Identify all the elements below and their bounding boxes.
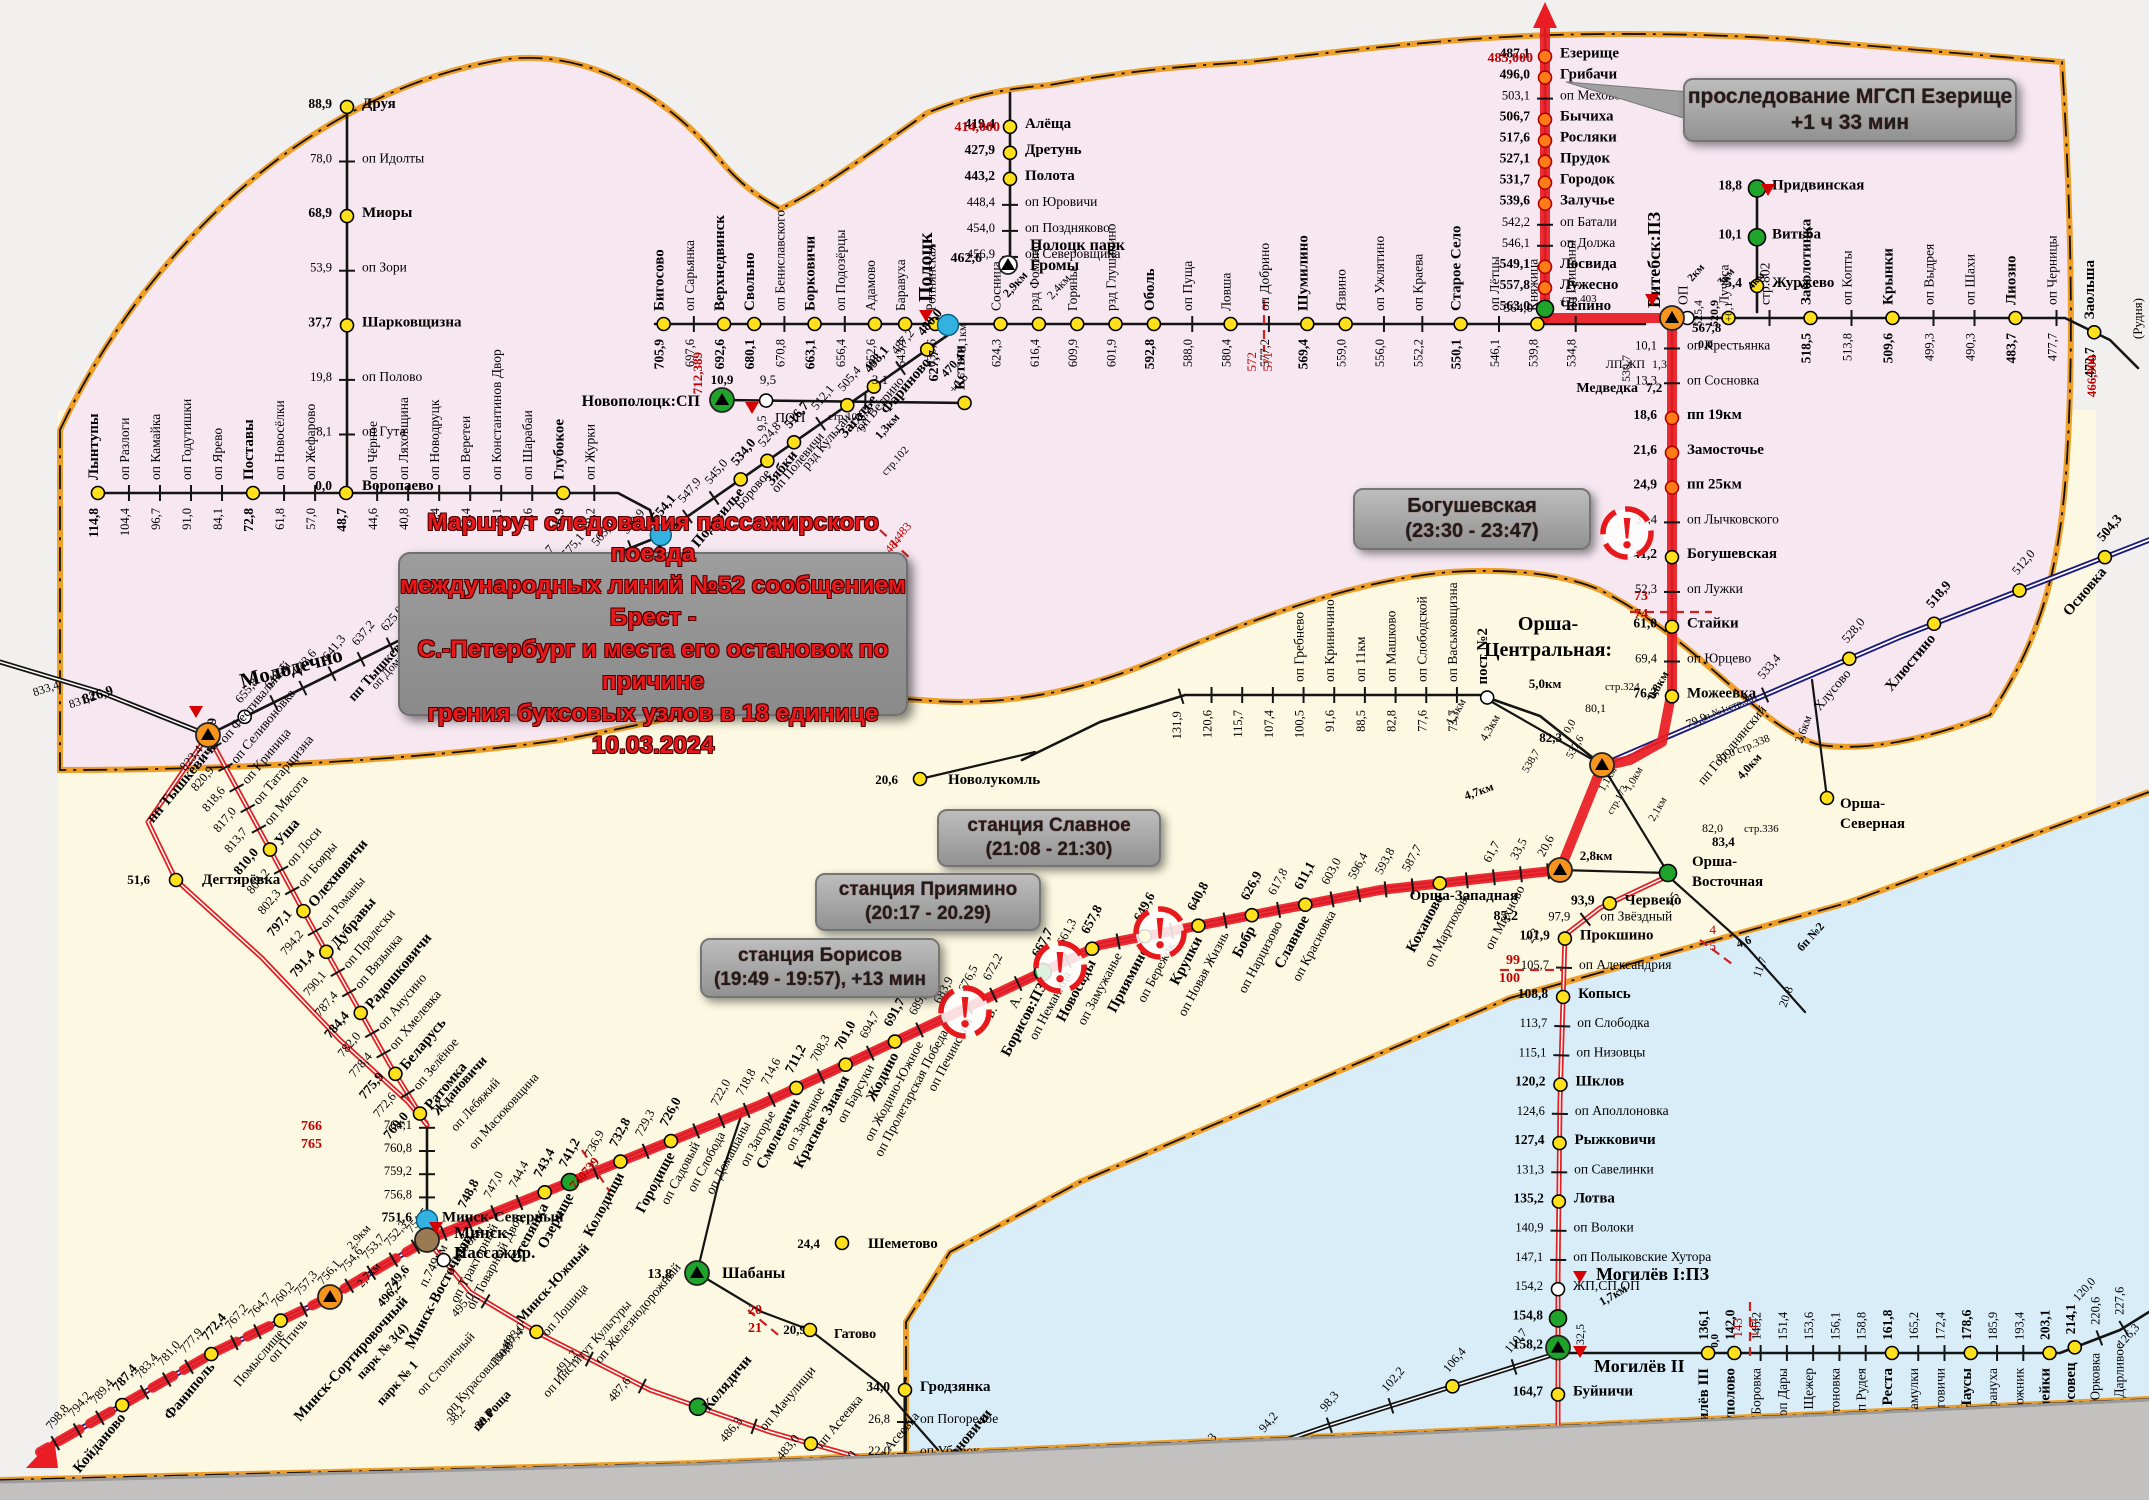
station-dot-yellow <box>2043 1347 2056 1360</box>
station-km: 517,6 <box>1500 130 1531 145</box>
station-оп Полово: оп Полово19,8 <box>310 369 422 384</box>
map-label: стр.403 <box>1562 293 1597 305</box>
station-km: 448,4 <box>967 195 996 209</box>
station-km: 107,4 <box>1262 709 1276 738</box>
station-km: 692,6 <box>712 339 727 370</box>
station-dot-yellow <box>1666 690 1679 703</box>
station-name: оп Зори <box>362 260 407 275</box>
station-name: оп Веретеи <box>458 416 473 480</box>
station-dot-white <box>1481 691 1494 704</box>
map-label: 627,7 <box>927 350 942 382</box>
station-name: Поставы <box>241 419 257 480</box>
station-Рыжковичи: Рыжковичи127,4 <box>1514 1132 1656 1150</box>
station-dot-green <box>1550 1310 1567 1327</box>
map-label: 100 <box>1499 971 1520 986</box>
station-dot-red <box>1539 155 1552 168</box>
station-km: 53,9 <box>310 261 332 275</box>
station-km: 84,1 <box>211 508 225 530</box>
station-km: 549,1 <box>1500 256 1531 271</box>
station-name: Заольша <box>2082 260 2098 320</box>
callout-text: (19:49 - 19:57), +13 мин <box>702 968 938 992</box>
station-km: 127,4 <box>1514 1132 1545 1147</box>
station-name: Городок <box>1560 172 1615 188</box>
station-dot-yellow <box>1666 620 1679 633</box>
station-km: 88,9 <box>308 96 332 111</box>
hotbox-warning-icon: ! <box>1136 907 1184 958</box>
station-оп Разлоги: оп Разлоги104,4 <box>117 418 132 537</box>
map-label: 143 <box>1730 1318 1745 1338</box>
station-name: Реста <box>1880 1368 1896 1406</box>
map-label: Орша- <box>1518 613 1578 635</box>
station-km: 19,8 <box>310 370 332 384</box>
station-km: 158,8 <box>1855 1312 1869 1340</box>
station-name: оп Гребнево <box>1292 612 1307 682</box>
station-name: оп Поздняково <box>1025 220 1110 235</box>
map-label: (Рудня) <box>2130 298 2145 339</box>
station-оп Годутишки: оп Годутишки91,0 <box>179 399 194 530</box>
station-km: 72,8 <box>241 508 256 532</box>
station-name: оп Черницы <box>2044 235 2059 305</box>
map-label: Северная <box>1840 816 1905 832</box>
station-dot-yellow <box>274 1314 287 1327</box>
station-dot-red <box>1666 446 1679 459</box>
station-name: оп Ужлятино <box>1372 236 1387 311</box>
station-km: 557,8 <box>1500 277 1531 292</box>
map-label: 83,4 <box>1712 834 1735 849</box>
map-label: Медведка <box>1576 381 1638 396</box>
station-km: 69,4 <box>1635 652 1658 666</box>
station-km: 751,6 <box>382 1210 413 1225</box>
station-dot-white <box>1552 1283 1565 1296</box>
title-line: международных линий №52 сообщением Брест… <box>400 570 906 634</box>
map-label: Гатово <box>834 1327 876 1342</box>
station-оп Лычковского: оп Лычковского31,4 <box>1635 511 1779 526</box>
station-name: Полота <box>1025 168 1075 184</box>
station-km: 8,1 <box>316 425 332 439</box>
station-dot-yellow <box>958 396 971 409</box>
station-dot-yellow <box>557 487 570 500</box>
station-dot-yellow <box>2068 1341 2081 1354</box>
map-label: 564,0 <box>1504 300 1533 315</box>
station-name: оп Полыковские Хутора <box>1573 1249 1711 1264</box>
station-km: 546,1 <box>1488 339 1502 367</box>
station-name: Шарковщизна <box>362 314 462 330</box>
station-name: Горяны <box>1065 268 1080 311</box>
station-km: 77,6 <box>1415 710 1429 732</box>
station-оп Батали: оп Батали542,2 <box>1502 214 1617 229</box>
map-label: 20,6 <box>875 772 898 787</box>
station-name: оп Слободской <box>1414 596 1429 682</box>
map-label: +0,1 <box>1723 302 1735 322</box>
station-km: 154,8 <box>1513 1307 1544 1322</box>
station-dot-yellow <box>297 905 310 918</box>
map-label: 766 <box>301 1119 322 1134</box>
station-km: 104,4 <box>118 507 132 536</box>
station-name: Стайки <box>1687 616 1739 632</box>
map-label: Орша- <box>1692 854 1737 870</box>
station-km: 108,8 <box>1518 986 1549 1001</box>
station-name: Свольно <box>742 252 758 311</box>
station-km: 151,4 <box>1776 1311 1790 1340</box>
station-km: 759,2 <box>384 1164 412 1178</box>
station-km: 534,8 <box>1565 339 1579 367</box>
station-dot-yellow <box>614 1155 627 1168</box>
station-km: 0,0 <box>315 478 332 493</box>
map-label: 144 <box>1746 1318 1761 1338</box>
station-dot-yellow <box>354 1006 367 1019</box>
station-dot-yellow <box>340 487 353 500</box>
station-name: оп Пуща <box>1180 261 1195 311</box>
station-Стайки: Стайки61,0 <box>1633 616 1739 634</box>
map-label: 572 <box>1244 352 1259 372</box>
station-dot-yellow <box>91 487 104 500</box>
station-dot-yellow <box>205 1348 218 1361</box>
callout-priyamino: станция Приямино (20:17 - 20.29) <box>815 873 1041 931</box>
station-dot-yellow <box>2098 551 2111 564</box>
station-оп Ужлятино: оп Ужлятино556,0 <box>1372 236 1387 367</box>
map-label: Могилёв II <box>1594 1356 1685 1376</box>
station-km: 193,4 <box>2012 1311 2026 1340</box>
station-dot-yellow <box>839 1058 852 1071</box>
station-dot-yellow <box>868 318 881 331</box>
station-name: Лынтупы <box>86 413 102 480</box>
callout-text: станция Приямино <box>817 878 1039 902</box>
station-dot-yellow <box>1531 318 1544 331</box>
map-label: 82,3 <box>1539 730 1562 745</box>
station-km: 588,0 <box>1181 339 1195 367</box>
station-пп 19км: пп 19км18,6 <box>1633 407 1742 425</box>
station-km: 135,2 <box>1513 1191 1544 1206</box>
station-name: Верхнедвинск <box>712 215 728 311</box>
callout-text: Богушевская <box>1355 494 1589 519</box>
hotbox-warning-icon: ! <box>1603 507 1651 558</box>
station-name: Витьба <box>1772 226 1821 242</box>
station-km: 120,2 <box>1515 1074 1546 1089</box>
station-Шарковщизна: Шарковщизна37,7 <box>308 314 462 332</box>
station-name: Миоры <box>362 205 413 221</box>
station-km: 550,1 <box>1449 339 1464 370</box>
station-dot-yellow <box>1553 1137 1566 1150</box>
exclamation-icon: ! <box>1619 507 1634 558</box>
station-km: 93,9 <box>1571 892 1595 907</box>
map-label: 73 <box>1634 589 1648 604</box>
station-dot-red <box>1539 113 1552 126</box>
station-dot-yellow <box>761 454 774 467</box>
station-name: оп Юрцево <box>1687 651 1751 666</box>
station-dot-yellow <box>1339 318 1352 331</box>
station-dot-red <box>1539 50 1552 63</box>
station-km: 609,9 <box>1066 339 1080 367</box>
station-оп Низовцы: оп Низовцы115,1 <box>1519 1044 1646 1059</box>
map-label: Новолукомль <box>948 772 1040 788</box>
station-km: 91,0 <box>180 508 194 530</box>
station-dot-yellow <box>1964 1347 1977 1360</box>
callout-text: (23:30 - 23:47) <box>1355 519 1589 544</box>
station-km: 172,4 <box>1934 1311 1948 1340</box>
station-km: 105,7 <box>1521 958 1549 972</box>
station-km: 509,6 <box>1881 333 1896 364</box>
station-name: Копысь <box>1578 986 1631 1002</box>
station-dot-red <box>1539 197 1552 210</box>
exclamation-icon: ! <box>957 986 972 1037</box>
map-label: 7,2 <box>1646 380 1662 395</box>
station-dot-yellow <box>2013 584 2026 597</box>
station-Журжево: Журжево5,4 <box>1725 275 1834 293</box>
station-dot-yellow <box>1821 792 1834 805</box>
station-dot-yellow <box>657 318 670 331</box>
station-km: 670,8 <box>773 339 787 367</box>
station-name: Глубокое <box>551 419 567 480</box>
station-km: 178,6 <box>1959 1309 1974 1340</box>
station-km: 539,6 <box>1500 193 1531 208</box>
station-dot-blue <box>938 315 959 336</box>
station-dot-yellow <box>664 1135 677 1148</box>
map-label: 5 <box>1710 938 1717 953</box>
station-оп Поздняково: оп Поздняково454,0 <box>967 220 1110 235</box>
station-dot-yellow <box>2088 326 2101 339</box>
station-name: Дретунь <box>1025 142 1082 158</box>
station-km: 78,0 <box>310 152 332 166</box>
station-name: оп Аполлоновка <box>1575 1103 1669 1118</box>
station-km: 506,7 <box>1500 109 1531 124</box>
station-name: оп Бениславского <box>772 210 787 311</box>
station-km: 518,5 <box>1799 333 1814 364</box>
station-km: 21,6 <box>1633 442 1657 457</box>
station-оп Юрцево: оп Юрцево69,4 <box>1635 651 1751 666</box>
station-dot-yellow <box>247 487 260 500</box>
station-dot-yellow <box>320 945 333 958</box>
station-оп Слободка: оп Слободка113,7 <box>1520 1015 1650 1030</box>
station-km: 82,8 <box>1385 710 1399 732</box>
station-dot-yellow <box>1804 312 1817 325</box>
station-km: 88,5 <box>1354 710 1368 732</box>
route-title-box: Маршрут следования пассажирского поезда … <box>398 552 908 716</box>
station-dot-yellow <box>1004 172 1017 185</box>
station-dot-yellow <box>841 399 854 412</box>
station-dot-yellow <box>899 1384 912 1397</box>
station-km: 556,0 <box>1373 339 1387 367</box>
station-оп Щежер: оп Щежер153,6 <box>1801 1312 1816 1427</box>
station-name: Бигосово <box>652 249 668 311</box>
title-line: Маршрут следования пассажирского поезда <box>400 507 906 571</box>
station-km: 18,8 <box>1718 178 1742 193</box>
station-пп 25км: пп 25км24,9 <box>1633 477 1742 495</box>
station-dot-yellow <box>1843 652 1856 665</box>
station-dot-yellow <box>1446 1380 1459 1393</box>
map-label: Громы <box>1030 257 1080 274</box>
station-dot-yellow <box>1192 919 1205 932</box>
station-dot-red <box>1539 281 1552 294</box>
map-label: 20 <box>748 1303 762 1318</box>
station-name: оп Ляховщина <box>396 397 411 480</box>
station-name: Друя <box>362 96 396 112</box>
station-km: 503,1 <box>1502 89 1530 103</box>
station-dot-yellow <box>263 843 276 856</box>
station-name: оп Должа <box>1560 235 1615 250</box>
map-label: стр.336 <box>1744 823 1779 835</box>
station-dot-yellow <box>2009 312 2022 325</box>
station-dot-yellow <box>1224 318 1237 331</box>
station-dot-yellow <box>734 473 747 486</box>
map-label: 13,8 <box>648 1267 673 1282</box>
map-label: 3,1 <box>872 372 888 387</box>
station-name: Рыжковичи <box>1575 1132 1657 1148</box>
station-name: оп Лужки <box>1687 581 1743 596</box>
station-name: Баравуха <box>893 259 908 311</box>
station-name: оп Сосновка <box>1687 372 1759 387</box>
title-line: грения буксовых узлов в 18 единице 10.03… <box>400 698 906 762</box>
station-name: Замосточье <box>1687 442 1764 458</box>
station-dot-yellow <box>808 318 821 331</box>
station-dot-yellow <box>1728 1347 1741 1360</box>
station-name: оп 11км <box>1353 636 1368 682</box>
map-label: 525,4 <box>1691 300 1705 327</box>
station-dot-yellow <box>1301 318 1314 331</box>
station-km: 120,6 <box>1201 710 1215 738</box>
station-dot-green <box>1660 865 1677 882</box>
station-dot-yellow <box>1554 1078 1567 1091</box>
station-km: 115,7 <box>1231 710 1245 738</box>
station-dot-yellow <box>718 318 731 331</box>
station-оп Машково: оп Машково82,8 <box>1384 610 1399 732</box>
map-label: Орша- <box>1840 796 1885 812</box>
station-оп Криничино: оп Криничино91,6 <box>1322 599 1337 732</box>
station-km: 499,3 <box>1923 333 1937 361</box>
station-km: 115,1 <box>1519 1045 1547 1059</box>
station-name: Борковичи <box>803 235 819 311</box>
station-km: 68,9 <box>308 205 332 220</box>
map-label: ПОП <box>775 411 805 426</box>
station-name: Буйничи <box>1573 1384 1633 1400</box>
station-name: Лужесно <box>1560 277 1618 293</box>
station-km: 220,6 <box>2088 1297 2102 1325</box>
station-km: 705,9 <box>652 339 667 370</box>
callout-text: проследование МГСП Езерище <box>1685 84 2015 110</box>
station-name: оп Копты <box>1840 250 1855 305</box>
station-dot-yellow <box>1245 909 1258 922</box>
station-name: Езерище <box>1560 46 1619 62</box>
station-name: оп Александрия <box>1579 957 1671 972</box>
station-name: оп Идолты <box>362 151 424 166</box>
station-dot-yellow <box>1004 120 1017 133</box>
station-name: Оболь <box>1142 268 1158 311</box>
map-label: 80,1 <box>1585 701 1606 715</box>
station-dot-white <box>760 394 773 407</box>
station-name: оп Батали <box>1560 214 1617 229</box>
station-km: 37,7 <box>308 314 332 329</box>
station-name: оп Ярево <box>210 428 225 480</box>
station-оп Слободской: оп Слободской77,6 <box>1414 596 1429 732</box>
station-km: 601,9 <box>1105 339 1119 367</box>
station-km: 427,9 <box>965 142 996 157</box>
callout-text: (20:17 - 20.29) <box>817 902 1039 926</box>
hotbox-warning-icon: ! <box>1036 941 1084 992</box>
station-km: 34,0 <box>866 1379 890 1394</box>
station-km: 477,7 <box>2045 333 2059 361</box>
station-оп Краева: оп Краева552,2 <box>1410 254 1425 367</box>
station-dot-yellow <box>538 1186 551 1199</box>
station-dot-yellow <box>1552 1388 1565 1401</box>
station-dot-yellow <box>1558 932 1571 945</box>
station-name: Придвинская <box>1772 178 1864 194</box>
station-km: 539,8 <box>1526 339 1540 367</box>
map-label: стр.324 <box>1605 681 1640 693</box>
station-оп Жефарово: оп Жефарово57,0 <box>303 404 318 530</box>
station-km: 443,2 <box>965 168 996 183</box>
station-dot-green <box>1749 180 1766 197</box>
station-km: 48,7 <box>334 508 349 532</box>
station-dot-yellow <box>790 1081 803 1094</box>
station-dot-yellow <box>1032 318 1045 331</box>
station-оп Звёздный: оп Звёздный97,9 <box>1548 908 1672 925</box>
station-name: оп Низовцы <box>1576 1044 1645 1059</box>
station-name: оп Добрино <box>1257 243 1272 311</box>
station-km: 552,2 <box>1411 339 1425 367</box>
station-dot-yellow <box>914 773 927 786</box>
station-name: Адамово <box>863 260 878 311</box>
station-name: оп Полово <box>362 369 422 384</box>
station-km: 760,8 <box>384 1141 412 1155</box>
station-Замосточье: Замосточье21,6 <box>1633 442 1764 460</box>
station-name: ОП <box>1676 285 1691 305</box>
station-name: оп Гута <box>362 424 405 439</box>
station-km: 153,6 <box>1802 1312 1816 1340</box>
station-km: 454,0 <box>967 221 995 235</box>
station-name: оп Шахи <box>1962 254 1977 305</box>
station-dot-yellow <box>341 210 354 223</box>
station-name: оп Лычковского <box>1687 511 1779 526</box>
map-label: Восточная <box>1692 874 1763 890</box>
station-оп Дарливое: оп Дарливое227,6 <box>2111 1287 2127 1415</box>
station-name: пп 19км <box>1687 407 1742 423</box>
station-name: Росляки <box>1560 130 1617 146</box>
station-km: 542,2 <box>1502 215 1530 229</box>
map-label: 74 <box>1634 607 1648 622</box>
map-label: Новополоцк:СП <box>582 393 701 410</box>
callout-slavnoye: станция Славное (21:08 - 21:30) <box>937 809 1161 867</box>
station-name: Ловша <box>1219 273 1234 311</box>
station-dot-yellow <box>836 1237 849 1250</box>
station-name: оп Машково <box>1384 610 1399 682</box>
station-оп Савелинки: оп Савелинки131,3 <box>1516 1161 1654 1176</box>
station-dot-green <box>1537 300 1554 317</box>
station-km: 483,7 <box>2003 333 2018 364</box>
map-label: Центральная: <box>1484 639 1612 661</box>
map-label: 51,6 <box>127 872 150 887</box>
map-label: Дегтярёвка <box>202 872 281 888</box>
station-Буйничи: Буйничи164,7 <box>1513 1384 1634 1402</box>
map-label: Могилёв I:ПЗ <box>1596 1264 1710 1284</box>
station-km: 18,6 <box>1633 407 1657 422</box>
station-km: 227,6 <box>2112 1287 2126 1315</box>
map-label: Витебск:ПЗ <box>1644 211 1664 308</box>
station-name: оп Новодруцк <box>427 399 442 480</box>
station-Богушевская: Богушевская41,2 <box>1633 546 1777 564</box>
station-km: 656,4 <box>834 338 848 367</box>
station-name: Алёща <box>1025 116 1072 132</box>
station-name: Чаусы <box>1959 1368 1975 1411</box>
station-name: Шумилино <box>1295 235 1311 311</box>
station-dot-red <box>1539 71 1552 84</box>
station-km: 680,1 <box>742 339 757 370</box>
station-name: оп Сарьянка <box>682 240 697 311</box>
railway-map-svg: Лынтупы114,8оп Разлоги104,4оп Камайка96,… <box>0 0 2149 1500</box>
station-оп Черницы: оп Черницы477,7 <box>2044 235 2059 361</box>
station-km: 124,6 <box>1517 1104 1545 1118</box>
station-dot-yellow <box>994 318 1007 331</box>
map-label: Шабаны <box>722 1265 786 1282</box>
station-dot-yellow <box>341 319 354 332</box>
